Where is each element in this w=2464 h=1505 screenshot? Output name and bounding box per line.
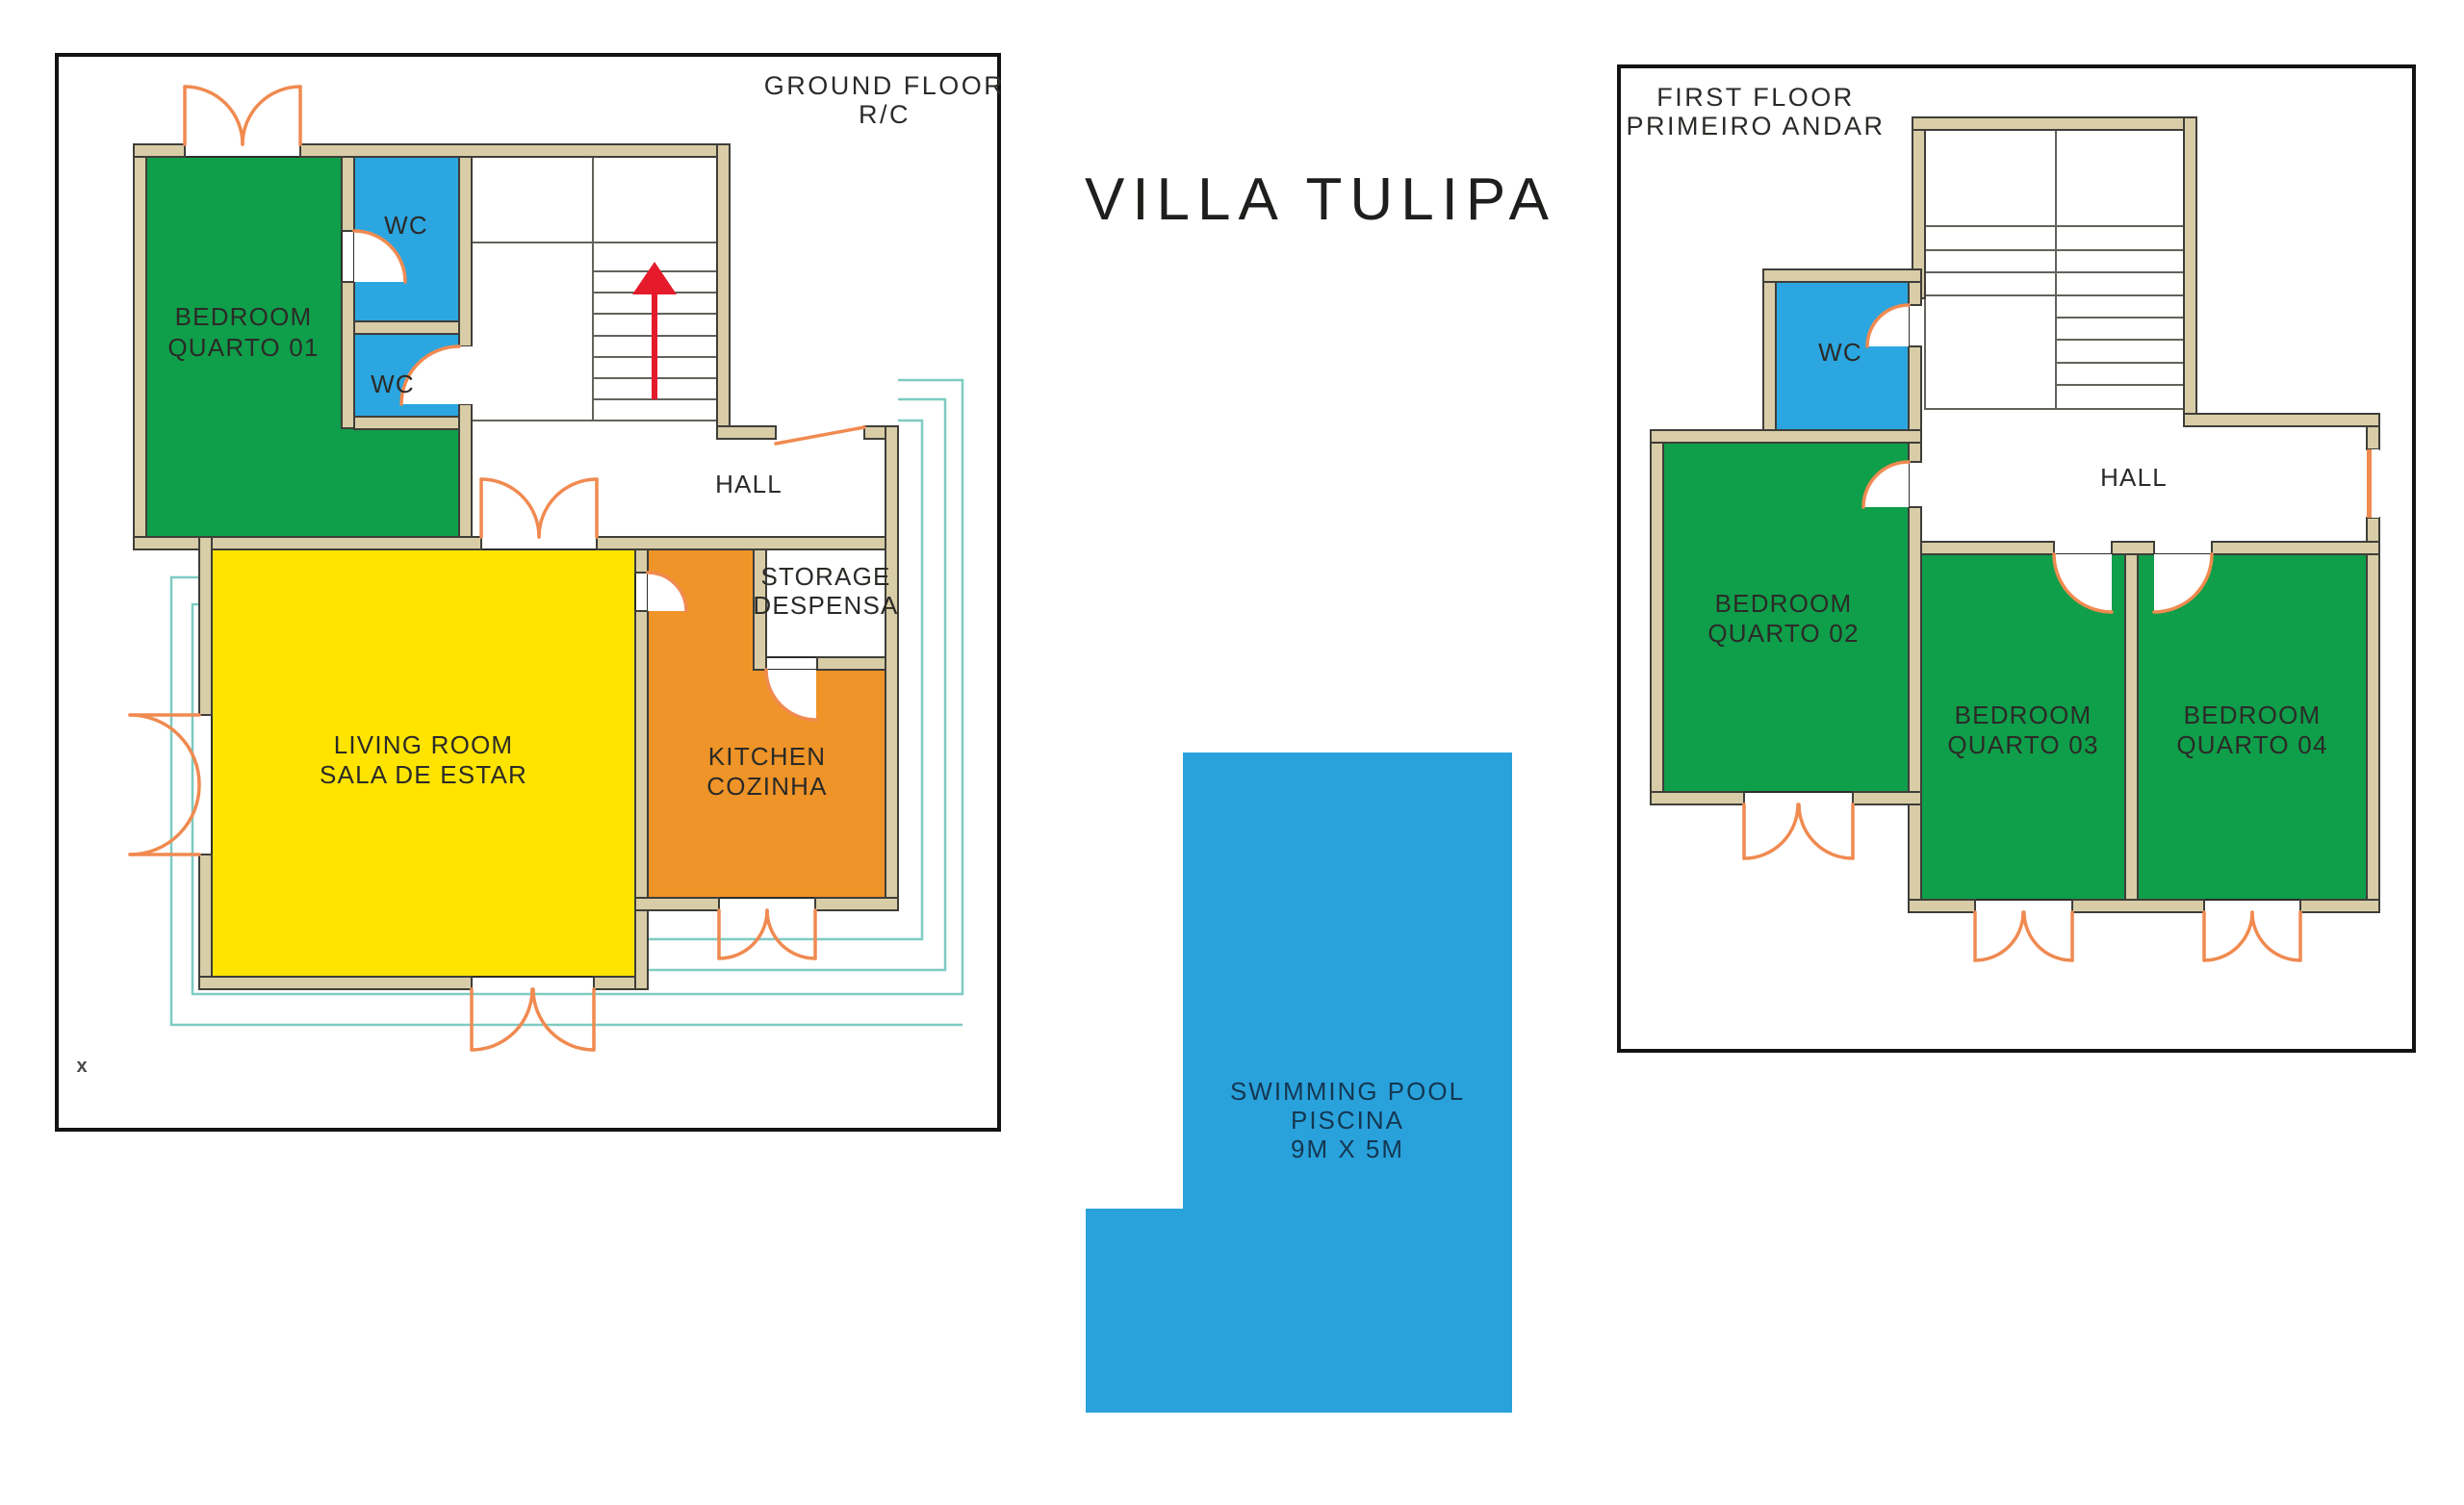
label-hall-ground: HALL xyxy=(715,470,783,498)
label-bedroom-01-line2: QUARTO 01 xyxy=(167,333,319,362)
ground-floor-heading-line2: R/C xyxy=(859,100,911,129)
hall-window xyxy=(2367,449,2379,518)
label-bedroom-04-line2: QUARTO 04 xyxy=(2176,730,2327,759)
plan-x-marker: x xyxy=(76,1056,87,1077)
label-bedroom-02-line2: QUARTO 02 xyxy=(1707,619,1859,648)
label-kitchen-line2: COZINHA xyxy=(706,772,827,801)
ground-floor-plan: GROUND FLOOR R/C BEDROOM QUARTO 01 WC WC… xyxy=(57,55,1005,1130)
door-hall-living xyxy=(481,479,597,537)
door-bedroom-01-exterior xyxy=(185,87,300,144)
label-kitchen-line1: KITCHEN xyxy=(708,742,827,771)
floor-plan-drawing: GROUND FLOOR R/C BEDROOM QUARTO 01 WC WC… xyxy=(0,0,2464,1505)
label-bedroom-02-line1: BEDROOM xyxy=(1715,589,1853,618)
door-bedroom-02-exterior xyxy=(1744,804,1853,858)
label-living-line2: SALA DE ESTAR xyxy=(320,760,527,789)
staircase-first xyxy=(1925,130,2184,409)
label-wc-first: WC xyxy=(1818,338,1862,367)
swimming-pool: SWIMMING POOL PISCINA 9M X 5M xyxy=(1086,752,1512,1413)
label-living-line1: LIVING ROOM xyxy=(334,730,514,759)
label-hall-first: HALL xyxy=(2100,463,2168,492)
label-bedroom-04-line1: BEDROOM xyxy=(2184,701,2322,729)
door-living-left-exterior xyxy=(130,715,199,855)
label-bedroom-03-line2: QUARTO 03 xyxy=(1947,730,2098,759)
first-floor-plan: FIRST FLOOR PRIMEIRO ANDAR WC HALL BEDRO… xyxy=(1619,66,2414,1051)
label-pool-line2: PISCINA xyxy=(1291,1106,1404,1135)
ground-floor-heading-line1: GROUND FLOOR xyxy=(764,71,1006,100)
first-floor-heading-line2: PRIMEIRO ANDAR xyxy=(1626,112,1885,140)
label-pool-line1: SWIMMING POOL xyxy=(1230,1077,1465,1106)
page-title: VILLA TULIPA xyxy=(1085,166,1556,233)
label-bedroom-01-line1: BEDROOM xyxy=(175,302,313,331)
door-bedroom-03-exterior xyxy=(1975,912,2072,960)
staircase-ground xyxy=(472,157,717,421)
door-living-bottom-exterior xyxy=(472,989,594,1050)
floor-plan-page: GROUND FLOOR R/C BEDROOM QUARTO 01 WC WC… xyxy=(0,0,2464,1505)
door-bedroom-04-exterior xyxy=(2204,912,2300,960)
label-bedroom-03-line1: BEDROOM xyxy=(1955,701,2092,729)
door-kitchen-bottom-exterior xyxy=(719,910,815,958)
label-wc-lower: WC xyxy=(371,370,415,398)
label-storage-line1: STORAGE xyxy=(760,562,890,591)
door-main-entrance xyxy=(776,427,864,444)
label-storage-line2: DESPENSA xyxy=(753,591,898,620)
label-pool-line3: 9M X 5M xyxy=(1291,1135,1404,1163)
label-wc-upper: WC xyxy=(384,211,428,240)
first-floor-heading-line1: FIRST FLOOR xyxy=(1656,83,1855,112)
